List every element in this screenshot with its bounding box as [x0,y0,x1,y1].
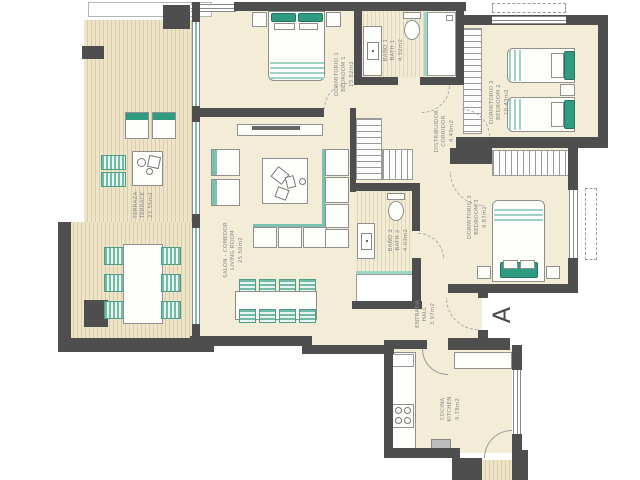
bedroom2-awning-dashed [492,3,566,13]
wall-facade-seg4 [192,324,200,338]
terrace-chair-4 [161,247,181,265]
wall-closet-left [350,112,356,192]
living-area: 25.50m2 [238,237,245,263]
bath2-name-en: BATH 2 [395,229,402,250]
kitchen-area: 9.78m2 [455,398,462,420]
bedroom3-window [569,190,578,258]
corridor-label: DISTRIBUIDOR CORRIDOR 4.49m2 [434,91,456,171]
bedroom2-bed-b [507,97,575,132]
bath2-name-es: BAÑO 2 [388,229,395,251]
corridor-name-en: CORRIDOR [441,115,448,146]
stove [392,404,414,428]
wall-bath2-top [350,183,420,191]
burner-icon [404,407,411,414]
dining-chair-6 [259,309,276,323]
kitchen-counter-left [390,352,416,450]
bedroom3-label: DORMITORIO 3 BEDROOM 3 9.87m2 [467,177,489,257]
bedroom3-awning-dashed [585,188,597,260]
rear-terrace-deck [482,460,512,480]
bed-foot-stripes [494,209,543,224]
bedroom1-bed [268,11,325,81]
terrace-lounge-chair-2 [152,112,176,139]
fridge-icon [392,354,414,367]
bath1-name-es: BAÑO 1 [383,39,390,61]
bed-headboard [564,51,575,80]
living-name-en: LIVING ROOM [230,230,237,270]
corridor-name-es: DISTRIBUIDOR [434,110,441,152]
bath2-area: 4.03m2 [403,229,410,251]
bedroom3-wardrobe [492,150,576,176]
bedroom2-area: 10.43m2 [504,89,511,115]
bedroom2-name-en: BEDROOM 2 [496,84,503,120]
kitchen-window [513,370,521,434]
terrace-area: 23.55m2 [148,192,155,218]
corridor-area: 4.49m2 [449,120,456,142]
sofa-module [253,227,277,248]
wall-facade-seg3 [192,214,200,228]
floor-plan: TERRAZA TERRACE 23.55m2 DORMITORIO 1 BED… [0,0,640,480]
hall-closet-a [356,118,382,180]
bed-pillow-teal [298,13,323,22]
bedroom1-nightstand-right [326,12,341,27]
bedroom3-name-en: BEDROOM 3 [474,199,481,235]
hall-label: ENTRADA HALL 3.97m2 [415,274,437,354]
wall-corridor-bedroom3 [450,148,492,164]
facade-window-2 [192,122,200,214]
burner-icon [395,417,402,424]
wall-rear-right-chunk [512,450,528,480]
wall-kitchen-top-b [448,338,510,350]
lounge-cushion [153,113,175,120]
wall-bath2-right-a [412,191,420,231]
bedroom2-window [492,16,566,24]
facade-window-1 [192,22,200,106]
terrace-cube-seat-1 [101,155,126,170]
wall-shower2-bottom [352,301,422,309]
terrace-chair-1 [104,247,124,265]
bedroom1-area: 13.82m2 [349,61,356,87]
terrace-name-en: TERRACE [140,192,147,219]
wall-rear-left-chunk [452,458,482,480]
bedroom2-label: DORMITORIO 2 BEDROOM 2 10.43m2 [489,62,511,142]
faucet-dot-icon [366,240,368,242]
terrace-chair-6 [161,301,181,319]
bed-pillow-white [299,23,318,30]
bedroom3-name-es: DORMITORIO 3 [467,195,474,239]
armchair-2 [211,179,240,206]
bedroom1-nightstand-left [252,12,267,27]
bath1-shower [427,12,456,76]
sofa-module [325,177,349,203]
bedroom1-name-es: DORMITORIO 1 [334,52,341,96]
wall-facade-seg2 [192,106,200,122]
terrace-cube-seat-2 [101,172,126,187]
terrace-chair-3 [104,301,124,319]
wall-facade-seg1 [192,2,200,22]
entrance-marker-a: A [488,303,516,327]
kitchen-name-en: KITCHEN [447,396,454,421]
bath2-label: BAÑO 2 BATH 2 4.03m2 [388,200,410,280]
wall-bedroom2-bottom [456,137,608,148]
bath1-shower-glass [424,12,427,76]
terrace-pillar-2 [163,5,190,29]
bath2-vanity [357,223,375,259]
lounge-cushion [126,113,148,120]
burner-icon [395,407,402,414]
hall-name-en: HALL [422,307,429,322]
terrace-chair-2 [104,274,124,292]
sofa-module [325,149,349,176]
wall-kitchen-bottom [384,448,460,458]
sofa-module [278,227,302,248]
wall-bedroom3-bottom [448,284,578,293]
bath1-label: BAÑO 1 BATH 1 4.32m2 [383,10,405,90]
bath2-toilet-tank [387,193,405,200]
wall-bedroom2-right [598,15,608,146]
kitchen-name-es: COCINA [440,398,447,421]
bench-cushion [503,260,518,269]
bench-cushion [520,260,535,269]
hall-name-es: ENTRADA [415,300,422,328]
bed-foot-stripes [270,62,324,79]
armchair-1 [211,149,240,176]
bed-pillow-teal [271,13,296,22]
wall-bedroom3-right-a [568,148,578,190]
bedroom2-bed-a [507,48,575,83]
wall-shower1-right [456,2,464,85]
bedroom1-label: DORMITORIO 1 BEDROOM 1 13.82m2 [334,34,356,114]
bath1-name-en: BATH 1 [390,39,397,60]
decor-circle-icon [299,178,306,185]
terrace-lounge-chair-1 [125,112,149,139]
bedroom2-nightstand [560,84,575,96]
bedroom1-name-en: BEDROOM 1 [341,56,348,92]
wall-bath1-bottom-b [420,77,456,85]
kitchen-counter-top [454,352,512,369]
terrace-pillar-1 [82,46,104,59]
wall-kitchen-left [384,340,393,456]
bedroom3-nightstand-right [546,266,560,279]
sofa-module [303,227,327,248]
wall-kitchen-right-a [512,345,522,370]
burner-icon [404,417,411,424]
bath1-vanity [363,26,382,76]
bed-pillow-white [551,53,564,78]
armchair-cushion [212,150,217,175]
tv-icon [252,126,300,130]
bath1-toilet-bowl [404,20,420,40]
hall-area: 3.97m2 [430,303,437,325]
wall-bedroom1-bottom-a [196,108,324,117]
decor-square-icon [285,175,297,189]
living-room-label: SALON - COMEDOR LIVING ROOM 25.50m2 [223,210,245,290]
bed-pillow-white [274,23,295,30]
bedroom3-area: 9.87m2 [482,206,489,228]
bedroom2-name-es: DORMITORIO 2 [489,80,496,124]
bath1-toilet-tank [403,12,421,19]
bed-pillow-white [551,102,564,127]
bed-headboard [564,100,575,129]
wall-living-bottom [190,336,312,346]
terrace-label: TERRAZA TERRACE 23.55m2 [133,165,155,245]
terrace-chair-5 [161,274,181,292]
bath1-area: 4.32m2 [398,39,405,61]
wall-hall-right-a [478,284,488,298]
terrace-wall-left [58,222,71,352]
dining-chair-8 [299,309,316,323]
wall-top-main [234,2,466,11]
bedroom3-nightstand-left [477,266,491,279]
sofa-module [325,204,349,228]
terrace-dining-table [123,244,163,324]
dining-chair-5 [239,309,256,323]
armchair-cushion [212,180,217,205]
dining-chair-7 [279,309,296,323]
shower-head-icon [446,15,453,21]
facade-window-3 [192,228,200,324]
kitchen-label: COCINA KITCHEN 9.78m2 [440,369,462,449]
coffee-table [262,158,308,204]
sofa-corner-module [325,229,349,248]
faucet-dot-icon [372,50,374,52]
terrace-name-es: TERRAZA [133,192,140,219]
wall-hall-bottom [302,345,394,354]
living-name-es: SALON - COMEDOR [223,222,230,278]
hall-closet-b [382,149,413,180]
